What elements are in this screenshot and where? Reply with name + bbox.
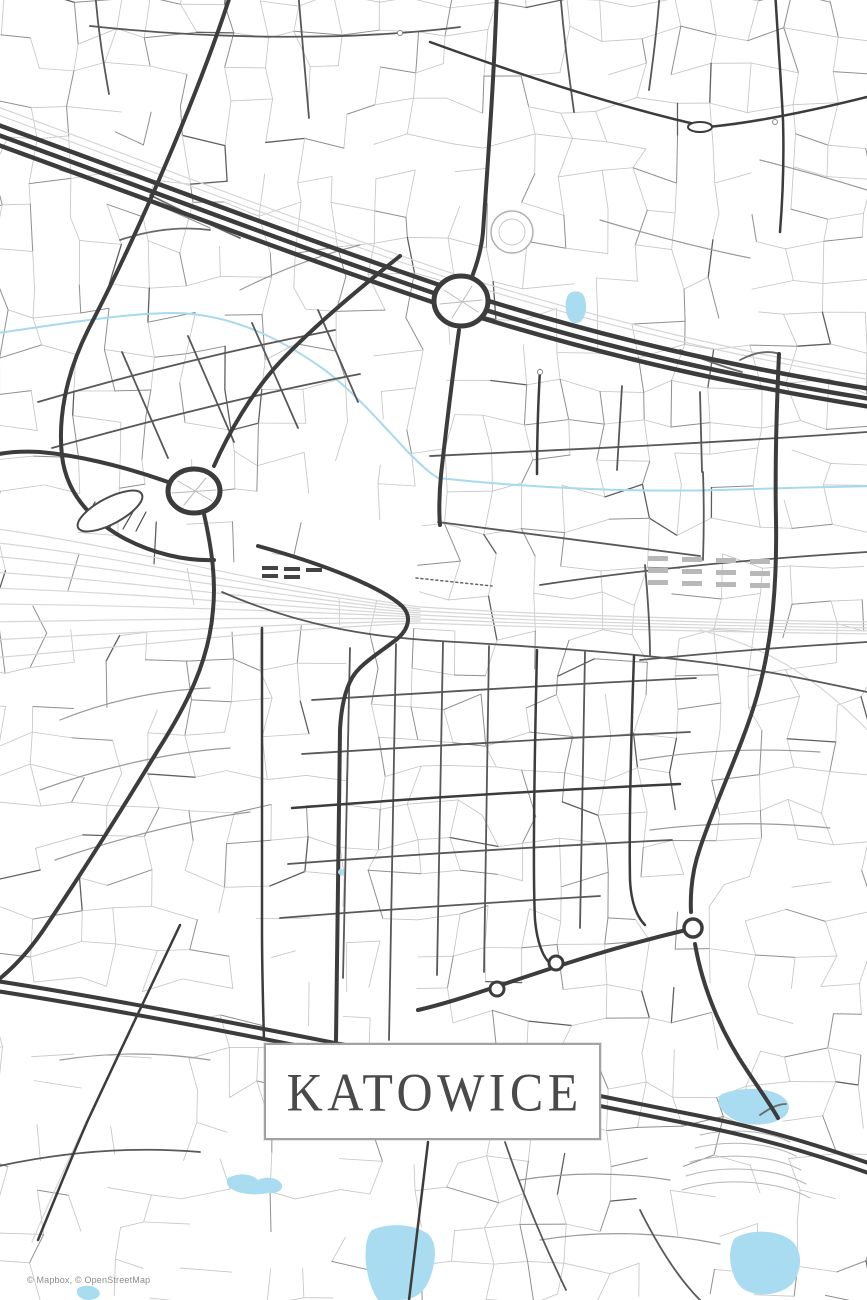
map-title: KATOWICE — [287, 1060, 583, 1123]
map-attribution: © Mapbox, © OpenStreetMap — [27, 1275, 150, 1285]
map-title-box: KATOWICE — [264, 1043, 601, 1140]
map-poster: KATOWICE © Mapbox, © OpenStreetMap — [0, 0, 867, 1300]
